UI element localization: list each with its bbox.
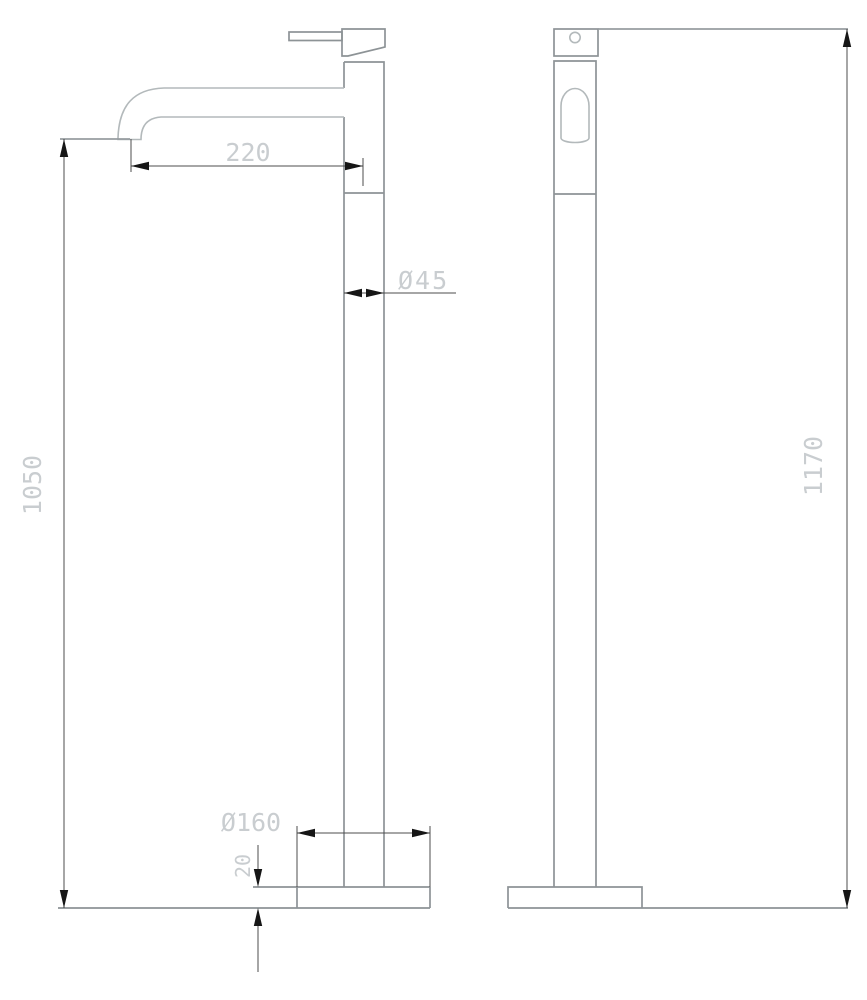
dim-spout-reach: 220 (60, 138, 363, 186)
side-view-dimensions: 220 1050 Ø45 Ø160 (18, 138, 456, 972)
technical-drawing: 220 1050 Ø45 Ø160 (0, 0, 867, 1000)
column-outline-front (554, 61, 596, 887)
dim-arrow-down-icon (843, 890, 851, 908)
handle-hole-circle (570, 32, 580, 42)
base-outline-side (253, 887, 430, 908)
dim-label-base-diameter: Ø160 (221, 808, 281, 837)
lever-handle-outline (289, 32, 342, 41)
dim-arrow-down-icon (60, 890, 68, 908)
dim-line (297, 826, 430, 887)
dim-label-total-height: 1170 (799, 436, 828, 496)
dim-column-diameter: Ø45 (344, 266, 456, 297)
dim-label-spout-height: 1050 (18, 455, 47, 515)
drawing-canvas: 220 1050 Ø45 Ø160 (0, 0, 867, 1000)
dim-total-height: 1170 (598, 29, 851, 908)
mixer-head-outline-side (342, 29, 385, 56)
base-outline-front (508, 887, 642, 908)
dim-arrow-left-icon (297, 829, 315, 837)
dim-arrow-right-icon (366, 289, 384, 297)
spout-arch-outline (561, 89, 589, 143)
dim-arrow-left-icon (131, 162, 149, 170)
dim-label-base-thickness: 20 (231, 854, 255, 878)
dim-label-column-diameter: Ø45 (398, 266, 449, 295)
dim-label-spout-reach: 220 (225, 138, 270, 167)
front-view (508, 29, 848, 908)
dim-arrow-up-icon (60, 139, 68, 157)
dim-arrow-up-icon (254, 908, 262, 926)
dim-arrow-right-icon (412, 829, 430, 837)
column-outline-side (344, 62, 384, 887)
dim-arrow-up-icon (843, 29, 851, 47)
dim-arrow-down-icon (254, 869, 262, 887)
dim-spout-height: 1050 (18, 139, 68, 908)
dim-arrow-right-icon (345, 162, 363, 170)
front-view-dimensions: 1170 (598, 29, 851, 908)
spout-outline (118, 88, 344, 140)
dim-arrow-left-icon (344, 289, 362, 297)
